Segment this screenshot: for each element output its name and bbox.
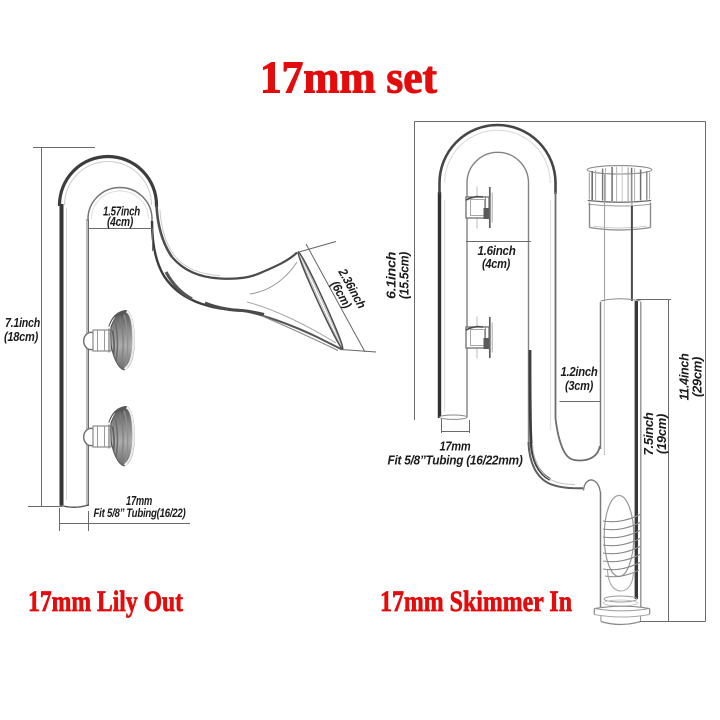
svg-text:Fit 5/8’’Tubing (16/22mm): Fit 5/8’’Tubing (16/22mm) xyxy=(388,453,523,468)
svg-text:(18cm): (18cm) xyxy=(4,330,38,344)
svg-text:17mm Lily Out: 17mm Lily Out xyxy=(28,585,183,618)
svg-text:1.6inch: 1.6inch xyxy=(478,244,517,258)
svg-text:(4cm): (4cm) xyxy=(482,257,510,271)
svg-text:(3cm): (3cm) xyxy=(565,379,593,393)
svg-text:(29cm): (29cm) xyxy=(690,357,705,397)
svg-text:7.1inch: 7.1inch xyxy=(5,316,41,330)
svg-text:(19cm): (19cm) xyxy=(654,414,669,454)
svg-text:17mm set: 17mm set xyxy=(260,52,438,103)
svg-text:17mm: 17mm xyxy=(440,439,472,454)
svg-text:Fit 5/8’’ Tubing(16/22): Fit 5/8’’ Tubing(16/22) xyxy=(94,506,186,520)
svg-text:(15.5cm): (15.5cm) xyxy=(397,252,412,299)
svg-text:(4cm): (4cm) xyxy=(107,215,133,229)
svg-text:17mm Skimmer In: 17mm Skimmer In xyxy=(380,585,572,618)
svg-text:1.2inch: 1.2inch xyxy=(561,365,599,379)
